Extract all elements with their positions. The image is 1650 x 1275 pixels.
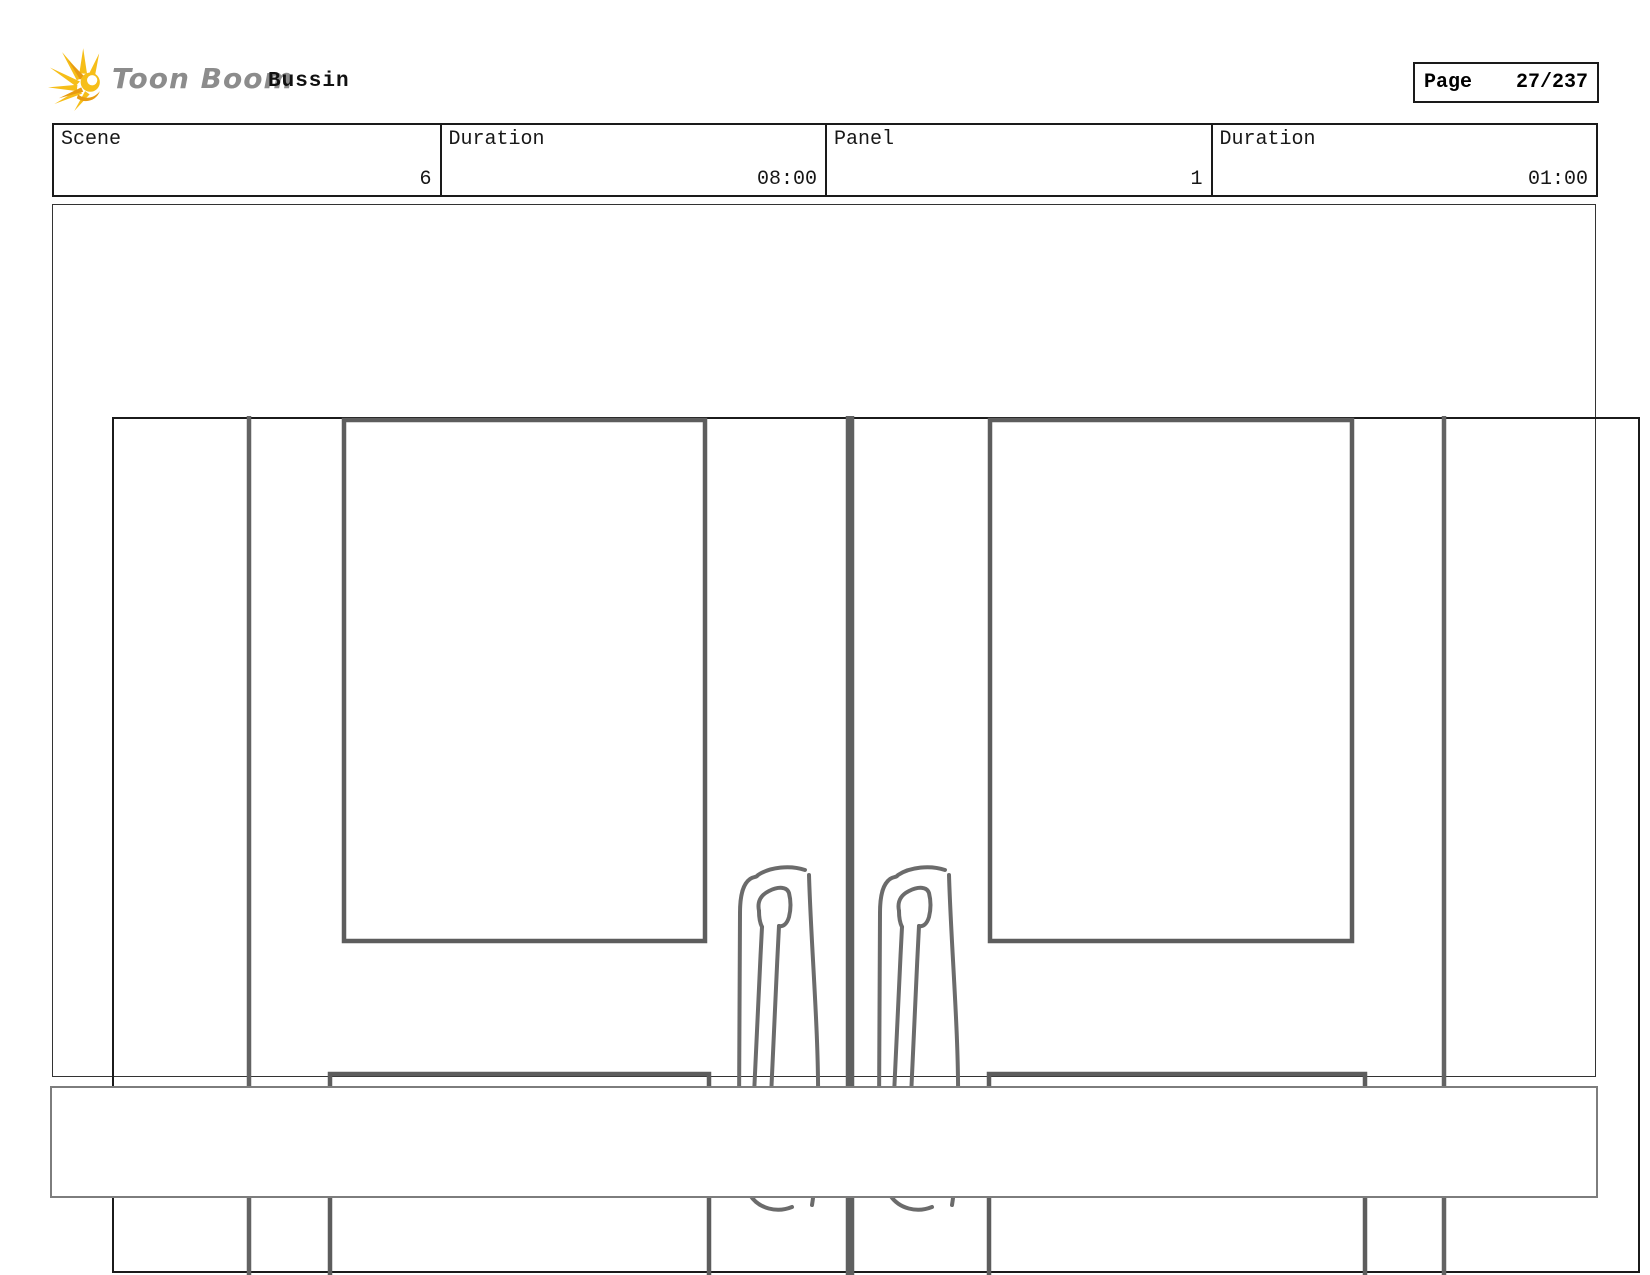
storyboard-page: Toon Boom Bussin Page 27/237 Scene 6 Dur… [0, 0, 1650, 1275]
page-number-box: Page 27/237 [1413, 62, 1599, 103]
info-cell-panel: Panel 1 [825, 125, 1211, 195]
storyboard-panel-frame [52, 204, 1596, 1077]
panel-duration-label: Duration [1220, 128, 1316, 151]
brand-wordmark: Toon Boom [112, 62, 294, 95]
page-value: 27/237 [1516, 71, 1588, 94]
scene-label: Scene [61, 128, 121, 151]
project-title: Bussin [268, 70, 350, 93]
panel-label: Panel [834, 128, 894, 151]
info-cell-scene: Scene 6 [54, 125, 440, 195]
info-cell-scene-duration: Duration 08:00 [440, 125, 826, 195]
panel-duration-value: 01:00 [1528, 168, 1588, 191]
scene-duration-label: Duration [449, 128, 545, 151]
scene-duration-value: 08:00 [757, 168, 817, 191]
scene-value: 6 [419, 168, 431, 191]
toonboom-logo-icon [48, 46, 112, 112]
panel-info-table: Scene 6 Duration 08:00 Panel 1 Duration … [52, 123, 1598, 197]
info-cell-panel-duration: Duration 01:00 [1211, 125, 1597, 195]
page-label: Page [1424, 71, 1472, 94]
caption-box [50, 1086, 1598, 1198]
panel-value: 1 [1190, 168, 1202, 191]
